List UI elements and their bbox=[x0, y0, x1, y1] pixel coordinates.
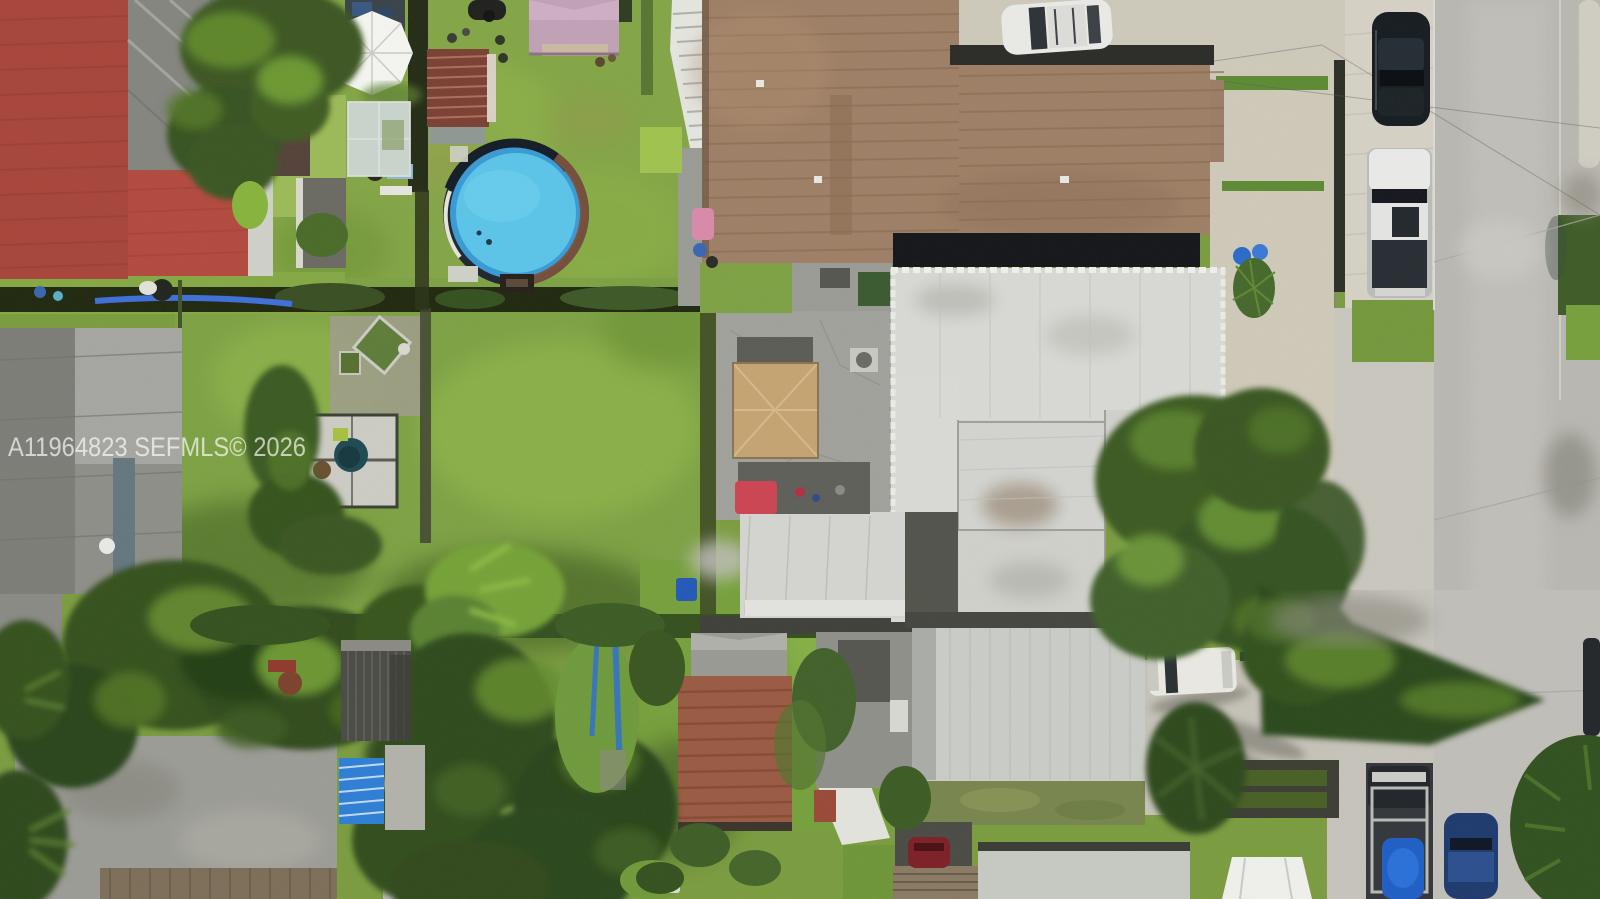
svg-text:A11964823 SEFMLS© 2026: A11964823 SEFMLS© 2026 bbox=[8, 432, 306, 462]
